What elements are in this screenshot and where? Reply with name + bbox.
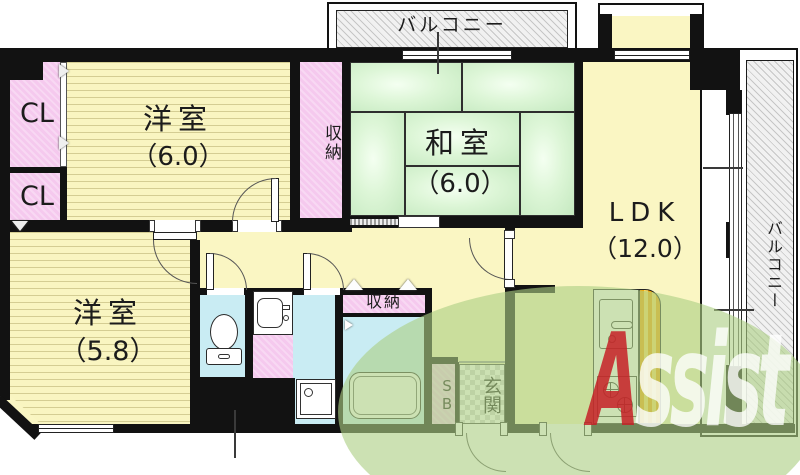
- wall: [342, 62, 350, 218]
- folding-door-mark: [345, 320, 353, 330]
- folding-door-mark: [12, 221, 28, 231]
- wall: [690, 48, 740, 90]
- window: [402, 50, 512, 60]
- closet-bottom-label: CL: [12, 183, 62, 211]
- room-ldk-size: （12.0）: [575, 236, 715, 262]
- room-western-bottom-label: 洋室: [38, 298, 178, 328]
- wall: [197, 220, 236, 232]
- room-western-top-label: 洋室: [108, 104, 248, 134]
- washing-machine-icon: [296, 379, 336, 419]
- center-tick: [437, 32, 439, 74]
- washroom-counter: [253, 335, 293, 378]
- window: [614, 50, 690, 60]
- balcony-top-label: バルコニー: [337, 16, 567, 36]
- wall: [0, 48, 10, 400]
- door-opening: [153, 220, 197, 232]
- closet-top-label: CL: [12, 100, 62, 128]
- wall: [10, 220, 153, 232]
- folding-door-mark: [399, 279, 417, 290]
- room-western-bottom-size: （5.8）: [38, 338, 178, 366]
- toilet-icon: [206, 314, 242, 368]
- door-post: [149, 220, 155, 232]
- fusuma-track: [350, 219, 398, 225]
- wall: [726, 90, 742, 115]
- watermark-letter-a: A: [588, 307, 635, 456]
- folding-door-mark: [59, 64, 69, 78]
- wall: [335, 313, 432, 317]
- room-japanese-label: 和室: [390, 128, 530, 158]
- bay-floor: [612, 16, 690, 50]
- folding-door-mark: [345, 279, 363, 290]
- floor-plan: バルコニー バルコニー: [0, 0, 800, 475]
- door-post: [504, 279, 515, 288]
- wall: [248, 378, 295, 424]
- window: [38, 424, 114, 433]
- tatami-mat: [462, 62, 575, 112]
- room-ldk-label: LDK: [575, 200, 715, 227]
- wall: [190, 377, 253, 424]
- folding-door-mark: [59, 136, 69, 150]
- door-post: [504, 230, 515, 239]
- wall: [575, 62, 583, 218]
- storage-top-label: 収納: [303, 108, 339, 178]
- wall: [690, 14, 704, 50]
- center-tick: [234, 410, 236, 458]
- wall: [290, 62, 300, 220]
- wall: [0, 48, 43, 80]
- tatami-mat: [350, 62, 462, 112]
- wall: [598, 14, 612, 50]
- watermark-letters-rest: ssist: [635, 307, 785, 456]
- room-western-top-size: （6.0）: [108, 144, 248, 171]
- door-leaf: [153, 232, 197, 240]
- watermark-text: Assist: [588, 318, 785, 446]
- wall: [245, 295, 253, 377]
- door-post: [195, 220, 201, 232]
- washbasin-icon: [253, 291, 293, 335]
- fusuma-opening: [398, 216, 440, 228]
- room-japanese-size: （6.0）: [390, 171, 530, 198]
- storage-bottom-label: 収納: [343, 294, 425, 311]
- center-tick: [703, 167, 743, 169]
- wall: [10, 167, 67, 173]
